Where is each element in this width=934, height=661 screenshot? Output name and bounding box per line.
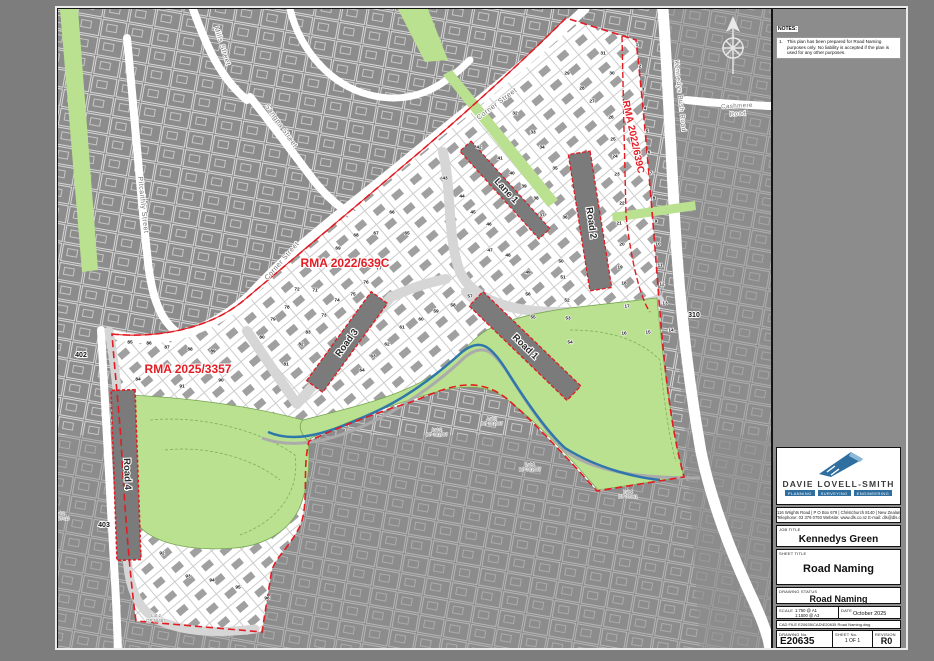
lot-number: 17 [624, 303, 630, 309]
lot-number: 93 [185, 573, 191, 579]
lot-number: 4 [644, 105, 647, 111]
lot-number: 1 [636, 41, 639, 47]
scale-date-box: SCALE 1:750 @ A1 1:1500 @ A3 DATE Octobe… [776, 606, 901, 619]
revision: R0 [873, 636, 900, 646]
parcel-number: 402 [75, 352, 87, 359]
lot-number: 10 [655, 241, 661, 247]
sheet-title-label: SHEET TITLE [779, 551, 806, 556]
reserve-west [125, 395, 309, 549]
lot-number: 45 [470, 209, 476, 215]
rma-label: RMA 2025/3357 [145, 362, 232, 376]
lot-number: 72 [294, 286, 300, 292]
lot-number: 74 [334, 297, 340, 303]
lot-number: 19 [617, 264, 623, 270]
address-box: 116 Wrights Road | P O Box 679 | Christc… [776, 507, 901, 523]
lot-number: 42 [476, 144, 482, 150]
cad-file-label: CAD FILE [779, 622, 797, 627]
lot-number: 69 [335, 245, 341, 251]
lot-number: 47 [487, 247, 493, 253]
lot-number: 22 [619, 200, 625, 206]
note-number: 1. [779, 39, 783, 45]
scale-cell: SCALE 1:750 @ A1 1:1500 @ A3 [777, 607, 839, 618]
lot-number: 9 [655, 218, 658, 224]
lot-number: 84 [135, 376, 141, 382]
lot-number: 32 [512, 110, 518, 116]
lot-number: 79 [270, 316, 276, 322]
lot-number: 67 [373, 230, 379, 236]
title-panel: NOTES: 1. This plan has been prepared fo… [773, 9, 906, 648]
lot-number: 8 [653, 195, 656, 201]
lot-number: 33 [530, 129, 536, 135]
company-contact: Telephone: 03 379 0793 Website: www.dls.… [777, 515, 900, 520]
discipline-planning: PLANNING [785, 490, 815, 496]
revision-cell: REVISION R0 [873, 631, 900, 647]
lot-number: 16 [621, 330, 627, 336]
drawing-no-label: DRAWING No. [779, 632, 808, 637]
lot-number: 43 [442, 175, 448, 181]
lot-number: 71 [312, 287, 318, 293]
lot-number: 56 [525, 291, 531, 297]
lot-number: 76 [363, 279, 369, 285]
sheet-no: 1 OF 1 [833, 638, 872, 644]
lot-number: 49 [525, 269, 531, 275]
parcel-number: 310 [688, 312, 700, 319]
job-title-label: JOB TITLE [779, 527, 801, 532]
lot-number: 30 [609, 70, 615, 76]
lot-number: 91 [179, 383, 185, 389]
lot-number: 24 [612, 153, 618, 159]
company-logo [777, 448, 900, 478]
lot-number: 23 [614, 171, 620, 177]
lot-number: 3 [642, 86, 645, 92]
sheet-title-box: SHEET TITLE Road Naming [776, 549, 901, 585]
notes-label: NOTES: [776, 25, 799, 33]
lot-number: 75 [350, 291, 356, 297]
lot-number: 28 [579, 85, 585, 91]
lot-number: 58 [450, 302, 456, 308]
lot-number: 94 [209, 577, 215, 583]
lot-number: 40 [509, 170, 515, 176]
lot-number: 66 [389, 209, 395, 215]
lot-number: 21 [616, 220, 622, 226]
parcel-number: 403 [98, 522, 110, 529]
lot-number: 80 [259, 334, 265, 340]
scale-a3: 1:1500 @ A3 [795, 613, 838, 618]
note-text: This plan has been prepared for Road Nam… [787, 39, 889, 55]
job-title-box: JOB TITLE Kennedys Green [776, 525, 901, 547]
drawing-number-box: DRAWING No. E20635 SHEET No. 1 OF 1 REVI… [776, 630, 901, 648]
lot-number: 2 [639, 63, 642, 69]
road-naming-map: 1234567891011121314151617181920212223242… [58, 9, 771, 648]
street-label: Road [730, 111, 747, 118]
lot-number: 95 [235, 584, 241, 590]
lot-number: 86 [146, 340, 152, 346]
lot-number: 57 [467, 293, 473, 299]
lot-number: 68 [353, 232, 359, 238]
lot-number: 6 [648, 149, 651, 155]
lot-number: 44 [459, 193, 465, 199]
lot-number: 90 [218, 377, 224, 383]
lot-number: 26 [608, 114, 614, 120]
date-label: DATE [841, 608, 852, 613]
logo-box: DAVIE LOVELL-SMITH PLANNING SURVEYING EN… [776, 447, 901, 505]
lot-number: 60 [418, 316, 424, 322]
lot-number: 48 [505, 252, 511, 258]
lot-number: 83 [305, 329, 311, 335]
cad-file-box: CAD FILE E20635\CAD\E20635 Road Naming.d… [776, 620, 901, 629]
drawing-status-box: DRAWING STATUS Road Naming [776, 587, 901, 604]
drawing-no-cell: DRAWING No. E20635 [777, 631, 833, 647]
lot-number: 85 [127, 339, 133, 345]
discipline-engineering: ENGINEERING [854, 490, 892, 496]
lot-number: 13 [662, 300, 668, 306]
lot-number: 92 [159, 550, 165, 556]
date-cell: DATE October 2025 [839, 607, 900, 618]
lot-number: 18 [621, 280, 627, 286]
lot-number: 65 [404, 230, 410, 236]
lot-number: 12 [659, 281, 665, 287]
lot-number: 35 [552, 165, 558, 171]
lot-number: 29 [564, 70, 570, 76]
lot-number: 87 [164, 344, 170, 350]
lot-number: 15 [645, 329, 651, 335]
lot-number: 64 [359, 367, 365, 373]
lot-number: 62 [384, 341, 390, 347]
lot-number: 63 [370, 353, 376, 359]
sheet-no-cell: SHEET No. 1 OF 1 [833, 631, 873, 647]
lot-number: 96 [264, 595, 270, 601]
company-address: 116 Wrights Road | P O Box 679 | Christc… [777, 508, 900, 515]
lot-number: 5 [646, 128, 649, 134]
lot-number: 14 [668, 327, 674, 333]
lot-number: 81 [283, 361, 289, 367]
discipline-ribbons: PLANNING SURVEYING ENGINEERING [777, 490, 900, 496]
lot-number: 41 [497, 155, 503, 161]
lot-number: 55 [530, 314, 536, 320]
lot-number: 88 [187, 346, 193, 352]
lot-number: 34 [539, 144, 545, 150]
lot-number: 37 [539, 212, 545, 218]
drawing-date: October 2025 [853, 611, 900, 617]
lot-number: 78 [284, 304, 290, 310]
plan-sheet: 1234567891011121314151617181920212223242… [0, 0, 934, 661]
lot-number: 54 [567, 339, 573, 345]
road-name-label: Road 4 [121, 458, 133, 491]
lot-number: 27 [589, 98, 595, 104]
lot-number: 38 [533, 195, 539, 201]
rma-label: RMA 2022/639C [301, 256, 390, 270]
drawing-status-label: DRAWING STATUS [779, 589, 817, 594]
lot-number: 89 [210, 348, 216, 354]
lot-number: 7 [650, 170, 653, 176]
notes-block: NOTES: 1. This plan has been prepared fo… [776, 17, 901, 59]
drawing-no: E20635 [780, 636, 832, 647]
lot-number: 25 [610, 136, 616, 142]
lot-number: 73 [321, 312, 327, 318]
lot-number: 11 [657, 262, 662, 268]
sheet-no-label: SHEET No. [835, 632, 857, 637]
lot-number: 39 [521, 183, 527, 189]
lot-number: 82 [298, 341, 304, 347]
lot-number: 50 [558, 258, 564, 264]
company-name: DAVIE LOVELL-SMITH [777, 479, 900, 489]
lot-number: 31 [600, 50, 606, 56]
lot-number: 20 [619, 241, 625, 247]
revision-label: REVISION [875, 632, 896, 637]
lot-number: 59 [433, 308, 439, 314]
cad-file: E20635\CAD\E20635 Road Naming.dwg [798, 622, 870, 627]
drawing-status: Road Naming [777, 594, 900, 604]
job-title: Kennedys Green [777, 534, 900, 545]
lot-number: 52 [564, 297, 570, 303]
lot-number: 53 [565, 315, 571, 321]
scale-label: SCALE [779, 608, 793, 613]
lot-number: 36 [562, 214, 568, 220]
discipline-surveying: SURVEYING [818, 490, 851, 496]
lot-number: 51 [560, 274, 566, 280]
lot-number: 61 [399, 324, 405, 330]
lot-number: 46 [486, 221, 492, 227]
sheet-title: Road Naming [777, 563, 900, 575]
